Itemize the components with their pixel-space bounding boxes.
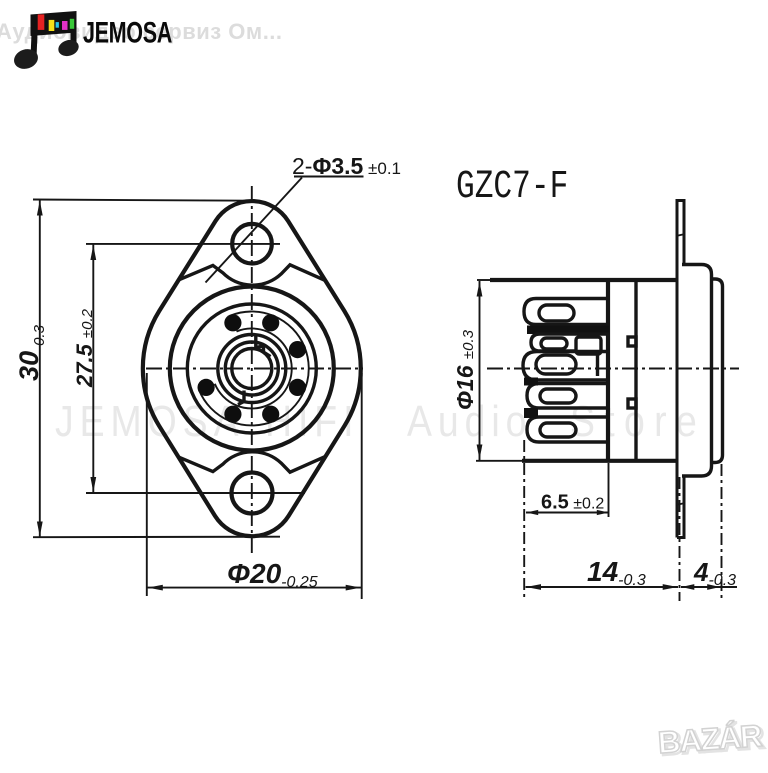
svg-text:Store: Store xyxy=(570,396,706,446)
svg-text:GZC7-F: GZC7-F xyxy=(456,164,568,210)
svg-text:JEMOSA: JEMOSA xyxy=(83,15,172,49)
svg-text:6.5 ±0.2: 6.5 ±0.2 xyxy=(541,492,604,514)
svg-text:BAZÁR: BAZÁR xyxy=(657,718,763,760)
